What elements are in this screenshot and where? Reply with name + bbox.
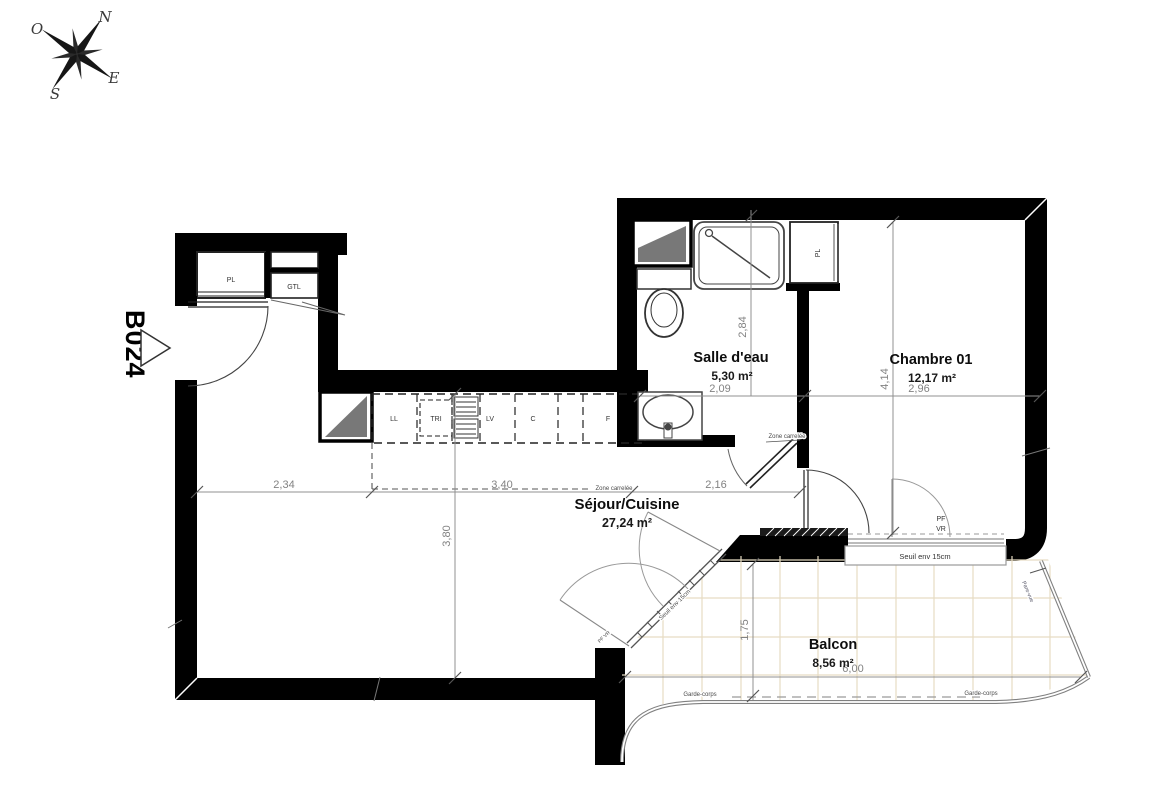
room-balcon-name: Balcon xyxy=(809,637,857,653)
garde-corps-right-label: Garde-corps xyxy=(964,691,997,697)
duct-bathroom xyxy=(633,220,691,266)
zone-carrelee-leader xyxy=(766,440,800,442)
balcony-railing xyxy=(622,677,1089,762)
kitchen-ll-label: LL xyxy=(390,416,398,423)
closet-pl-chambre-label: PL xyxy=(815,249,822,258)
dim-balcon-height: 1,75 xyxy=(739,619,751,640)
kitchen-unit-labels: LL TRI LV C F xyxy=(390,416,610,423)
entry-door-arc xyxy=(188,306,268,386)
window-sejour-diagonal xyxy=(560,512,726,648)
wall-right-elbow xyxy=(1006,209,1036,550)
seuil-chambre-label: Seuil env 15cm xyxy=(899,552,950,561)
kitchen-c-label: C xyxy=(530,416,535,423)
compass-south-label: S xyxy=(50,85,60,103)
hatched-wall-band xyxy=(760,528,848,536)
compass-west-label: O xyxy=(31,20,43,38)
pf-label: PF xyxy=(937,516,946,523)
entry-door xyxy=(175,296,268,386)
shower xyxy=(694,222,784,289)
pare-vue-label: Pare-vue xyxy=(1020,580,1034,603)
room-balcon-area: 8,56 m² xyxy=(812,656,853,670)
room-sejour-name: Séjour/Cuisine xyxy=(574,496,679,513)
closet-pl-entry-label: PL xyxy=(227,277,236,284)
dim-sejour-right: 2,16 xyxy=(705,479,726,491)
dim-salle-deau-width: 2,09 xyxy=(709,383,730,395)
duct-kitchen xyxy=(320,392,372,441)
floor-plan-svg: N O E S B024 PL GTL xyxy=(0,0,1156,800)
garde-corps-left-label: Garde-corps xyxy=(683,692,716,698)
door-chambre xyxy=(804,470,869,533)
floor-plan: N O E S B024 PL GTL xyxy=(0,0,1156,800)
closet-divider-wall xyxy=(265,252,271,298)
vr-label: VR xyxy=(936,526,946,533)
kitchen-sink xyxy=(454,397,478,438)
dim-sejour-mid: 3,40 xyxy=(491,479,512,491)
compass-rose: N O E S xyxy=(17,0,137,114)
dim-salle-deau-height: 2,84 xyxy=(737,316,749,337)
dim-chambre-height: 4,14 xyxy=(879,368,891,389)
compass-east-label: E xyxy=(108,69,120,87)
room-sejour-area: 27,24 m² xyxy=(602,516,652,530)
room-chambre-name: Chambre 01 xyxy=(889,352,972,368)
zone-carrelee-bath-label: Zone carrelée xyxy=(768,434,806,440)
entry-arrow-icon xyxy=(141,330,170,366)
dim-sejour-height: 3,80 xyxy=(441,525,453,546)
room-salle-deau-name: Salle d'eau xyxy=(693,350,768,366)
pare-vue-screen xyxy=(1030,561,1089,677)
room-salle-deau-area: 5,30 m² xyxy=(711,369,752,383)
dim-sejour-left: 2,34 xyxy=(273,479,294,491)
door-salle-deau xyxy=(728,439,797,488)
kitchen-f-label: F xyxy=(606,416,610,423)
zone-carrelee-kitchen-label: Zone carrelée xyxy=(595,486,633,492)
washbasin xyxy=(638,392,702,440)
seuil-sejour-label: Seuil env 15cm xyxy=(658,589,692,622)
compass-star xyxy=(17,0,137,114)
sejour-door-arc-2 xyxy=(560,563,688,600)
tiled-zone-boundary xyxy=(372,443,592,489)
pf-vr-sejour-label: PF VR xyxy=(597,630,612,645)
kitchen-units xyxy=(372,394,645,443)
closet-pl-entry: PL xyxy=(197,252,265,298)
closet-pl-chambre: PL xyxy=(790,222,838,283)
kitchen-tri-label: TRI xyxy=(430,416,441,423)
sejour-door-leaves xyxy=(560,512,720,646)
room-chambre-area: 12,17 m² xyxy=(908,371,956,385)
washbasin-tap-icon xyxy=(665,424,671,430)
compass-north-label: N xyxy=(97,8,112,26)
toilet xyxy=(637,269,691,337)
kitchen-lv-label: LV xyxy=(486,416,494,423)
closet-gtl-label: GTL xyxy=(287,284,301,291)
